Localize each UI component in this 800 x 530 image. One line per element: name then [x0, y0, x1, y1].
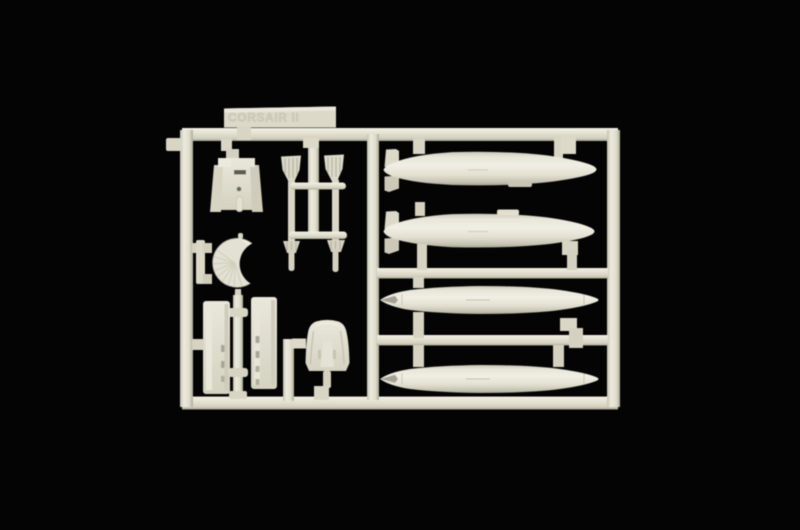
svg-text:CORSAIR II: CORSAIR II: [228, 111, 299, 125]
